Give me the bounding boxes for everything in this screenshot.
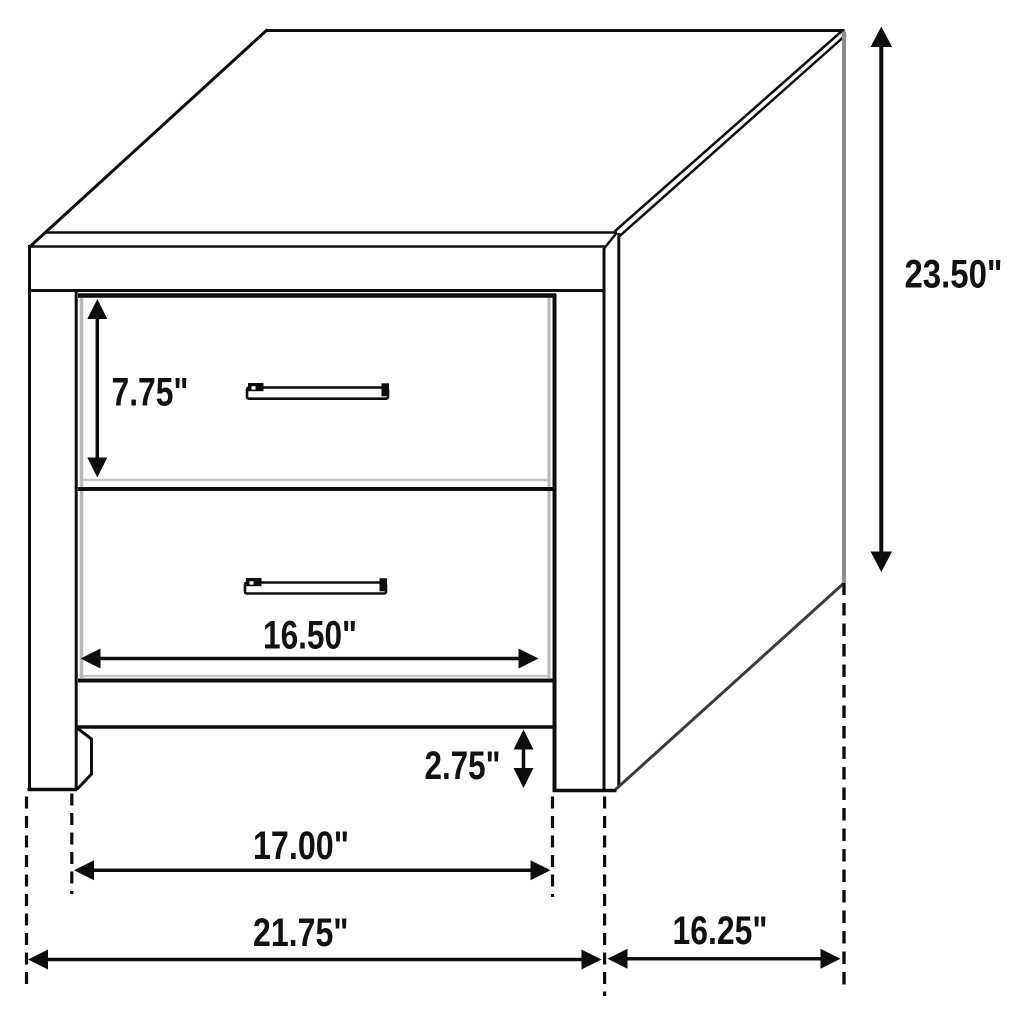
svg-text:2.75": 2.75" (425, 744, 501, 788)
svg-text:17.00": 17.00" (253, 824, 349, 868)
svg-text:16.50": 16.50" (263, 614, 357, 658)
svg-text:7.75": 7.75" (112, 371, 189, 415)
svg-text:23.50": 23.50" (905, 253, 1003, 297)
svg-text:16.25": 16.25" (673, 909, 768, 953)
svg-text:21.75": 21.75" (253, 911, 349, 955)
